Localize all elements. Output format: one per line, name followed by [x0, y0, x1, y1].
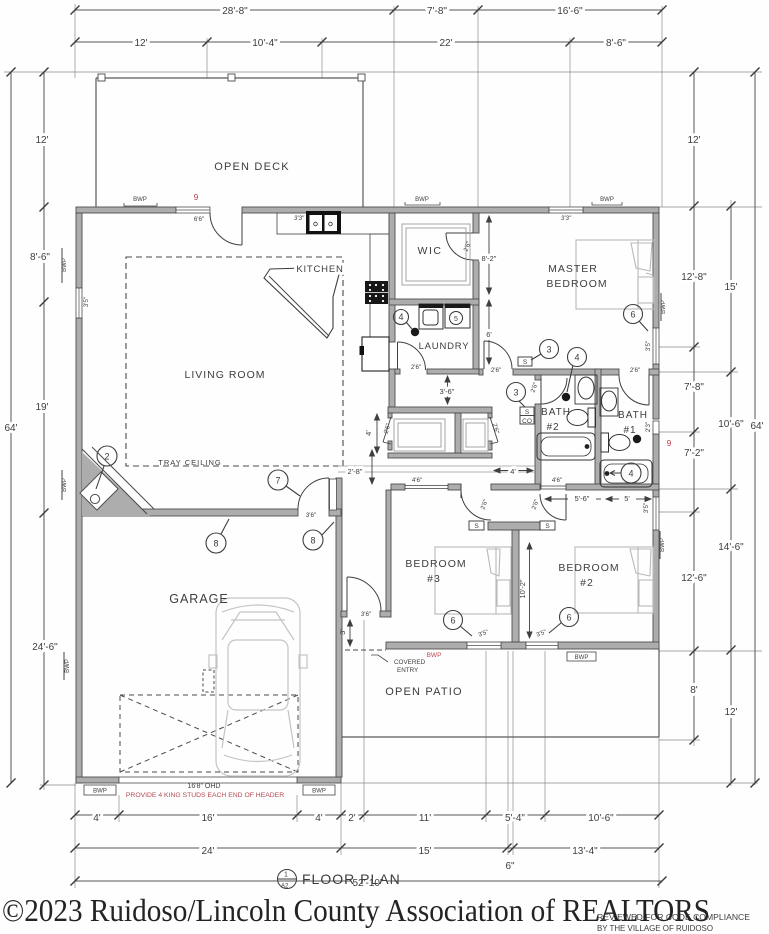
svg-text:12'-6": 12'-6"	[681, 573, 707, 584]
svg-text:4': 4'	[510, 467, 516, 476]
svg-text:3': 3'	[338, 629, 347, 635]
svg-text:3'3": 3'3"	[561, 215, 572, 222]
svg-text:3: 3	[546, 345, 551, 355]
svg-text:4': 4'	[315, 813, 323, 824]
svg-text:3: 3	[513, 388, 518, 398]
svg-text:8'-2": 8'-2"	[482, 254, 497, 263]
svg-text:S: S	[474, 523, 479, 530]
svg-text:GARAGE: GARAGE	[169, 592, 229, 606]
svg-text:A2: A2	[281, 884, 289, 890]
svg-text:14'-6": 14'-6"	[718, 542, 744, 553]
svg-text:64': 64'	[4, 423, 17, 434]
svg-text:BWP: BWP	[62, 478, 68, 492]
svg-text:BWP: BWP	[427, 652, 442, 659]
svg-text:2'6": 2'6"	[630, 367, 640, 374]
svg-text:#1: #1	[623, 425, 636, 436]
svg-text:©2023 Ruidoso/Lincoln County A: ©2023 Ruidoso/Lincoln County Association…	[2, 892, 710, 928]
svg-text:3'-6": 3'-6"	[440, 387, 455, 396]
svg-text:7'-2": 7'-2"	[684, 448, 704, 459]
svg-text:BWP: BWP	[312, 789, 326, 795]
svg-text:8'-6": 8'-6"	[30, 252, 50, 263]
svg-text:10'-6": 10'-6"	[718, 419, 744, 430]
svg-text:8: 8	[310, 536, 315, 546]
svg-text:COVERED: COVERED	[394, 659, 426, 666]
svg-text:BWP: BWP	[65, 659, 71, 673]
svg-text:BWP: BWP	[133, 197, 147, 203]
svg-text:5': 5'	[624, 494, 630, 503]
svg-text:3'5": 3'5"	[645, 341, 652, 351]
svg-text:8'-6": 8'-6"	[606, 38, 626, 49]
svg-text:4'6": 4'6"	[412, 477, 422, 484]
svg-text:KITCHEN: KITCHEN	[296, 264, 343, 275]
svg-text:13'-4": 13'-4"	[572, 846, 598, 857]
svg-text:S: S	[525, 409, 530, 416]
svg-text:24'-6": 24'-6"	[32, 642, 58, 653]
svg-text:12': 12'	[35, 135, 48, 146]
svg-text:5: 5	[454, 316, 458, 323]
svg-text:12': 12'	[134, 38, 147, 49]
svg-text:10'-2": 10'-2"	[518, 579, 527, 598]
svg-text:WIC: WIC	[418, 245, 443, 257]
svg-text:19': 19'	[35, 402, 48, 413]
svg-text:OPEN PATIO: OPEN PATIO	[385, 686, 463, 698]
svg-text:S: S	[523, 359, 528, 366]
svg-text:OPEN DECK: OPEN DECK	[214, 161, 290, 173]
svg-text:BWP: BWP	[600, 197, 614, 203]
svg-text:#2: #2	[546, 422, 559, 433]
svg-text:5'-6": 5'-6"	[575, 494, 590, 503]
svg-text:4: 4	[398, 312, 403, 322]
svg-text:3'3": 3'3"	[294, 215, 305, 222]
svg-text:3'6": 3'6"	[361, 611, 371, 618]
svg-text:BWP: BWP	[62, 258, 68, 272]
svg-text:2': 2'	[348, 813, 356, 824]
svg-text:BWP: BWP	[661, 300, 667, 314]
svg-text:PROVIDE 4 KING STUDS EACH END: PROVIDE 4 KING STUDS EACH END OF HEADER	[126, 792, 284, 799]
svg-text:16': 16'	[201, 813, 214, 824]
svg-text:24': 24'	[201, 846, 214, 857]
svg-text:ENTRY: ENTRY	[397, 667, 419, 674]
svg-text:6'6": 6'6"	[194, 216, 204, 223]
svg-text:2: 2	[104, 452, 109, 462]
svg-text:3'5": 3'5"	[83, 297, 90, 307]
svg-text:3'6": 3'6"	[306, 512, 316, 519]
svg-text:#3: #3	[427, 573, 441, 585]
svg-text:12'-8": 12'-8"	[681, 272, 707, 283]
svg-text:8': 8'	[690, 685, 698, 696]
svg-text:15': 15'	[418, 846, 431, 857]
svg-text:BATH: BATH	[618, 410, 648, 421]
svg-text:10'-6": 10'-6"	[588, 813, 614, 824]
svg-text:4': 4'	[93, 813, 101, 824]
svg-text:15': 15'	[724, 282, 737, 293]
svg-text:4: 4	[628, 469, 633, 479]
svg-text:16'8" OHD: 16'8" OHD	[187, 783, 220, 790]
svg-text:CO: CO	[522, 418, 532, 425]
svg-text:9: 9	[667, 438, 672, 448]
svg-text:FLOOR PLAN: FLOOR PLAN	[302, 871, 401, 887]
svg-text:2'3": 2'3"	[645, 422, 652, 432]
svg-text:BWP: BWP	[660, 538, 666, 552]
svg-text:2'-8": 2'-8"	[348, 467, 363, 476]
svg-text:16'-6": 16'-6"	[557, 6, 583, 17]
svg-text:12': 12'	[687, 135, 700, 146]
svg-text:6': 6'	[486, 330, 492, 339]
svg-text:8: 8	[213, 539, 218, 549]
svg-text:6: 6	[450, 616, 455, 626]
svg-text:4'6": 4'6"	[552, 477, 562, 484]
svg-text:BWP: BWP	[575, 655, 589, 661]
svg-text:12': 12'	[724, 707, 737, 718]
svg-text:9: 9	[194, 192, 199, 202]
svg-text:BEDROOM: BEDROOM	[405, 558, 466, 570]
svg-text:7'-8": 7'-8"	[427, 6, 447, 17]
svg-text:7: 7	[275, 476, 280, 486]
svg-text:#2: #2	[580, 577, 594, 589]
svg-text:3'5": 3'5"	[643, 503, 650, 513]
svg-text:BWP: BWP	[93, 789, 107, 795]
svg-text:TRAY CEILING: TRAY CEILING	[158, 458, 221, 467]
svg-text:2'6": 2'6"	[491, 367, 501, 374]
svg-text:11': 11'	[419, 813, 431, 824]
svg-text:1: 1	[284, 872, 288, 879]
svg-text:6": 6"	[505, 861, 515, 872]
svg-text:S: S	[545, 523, 550, 530]
svg-text:6: 6	[566, 613, 571, 623]
svg-text:4: 4	[574, 353, 579, 363]
svg-text:22': 22'	[439, 38, 452, 49]
svg-text:64': 64'	[750, 421, 763, 432]
svg-text:BEDROOM: BEDROOM	[546, 278, 607, 290]
svg-text:28'-8": 28'-8"	[222, 6, 248, 17]
svg-text:6: 6	[630, 310, 635, 320]
svg-text:10'-4": 10'-4"	[252, 38, 278, 49]
svg-text:MASTER: MASTER	[548, 263, 598, 275]
svg-text:LIVING ROOM: LIVING ROOM	[184, 369, 265, 381]
svg-text:LAUNDRY: LAUNDRY	[419, 341, 470, 352]
svg-text:2'6": 2'6"	[411, 364, 421, 371]
svg-text:BEDROOM: BEDROOM	[558, 562, 619, 574]
svg-text:5'-4": 5'-4"	[505, 813, 525, 824]
svg-text:4': 4'	[364, 430, 373, 436]
svg-text:7'-8": 7'-8"	[684, 382, 704, 393]
svg-text:BWP: BWP	[415, 197, 429, 203]
svg-text:BATH: BATH	[541, 407, 571, 418]
